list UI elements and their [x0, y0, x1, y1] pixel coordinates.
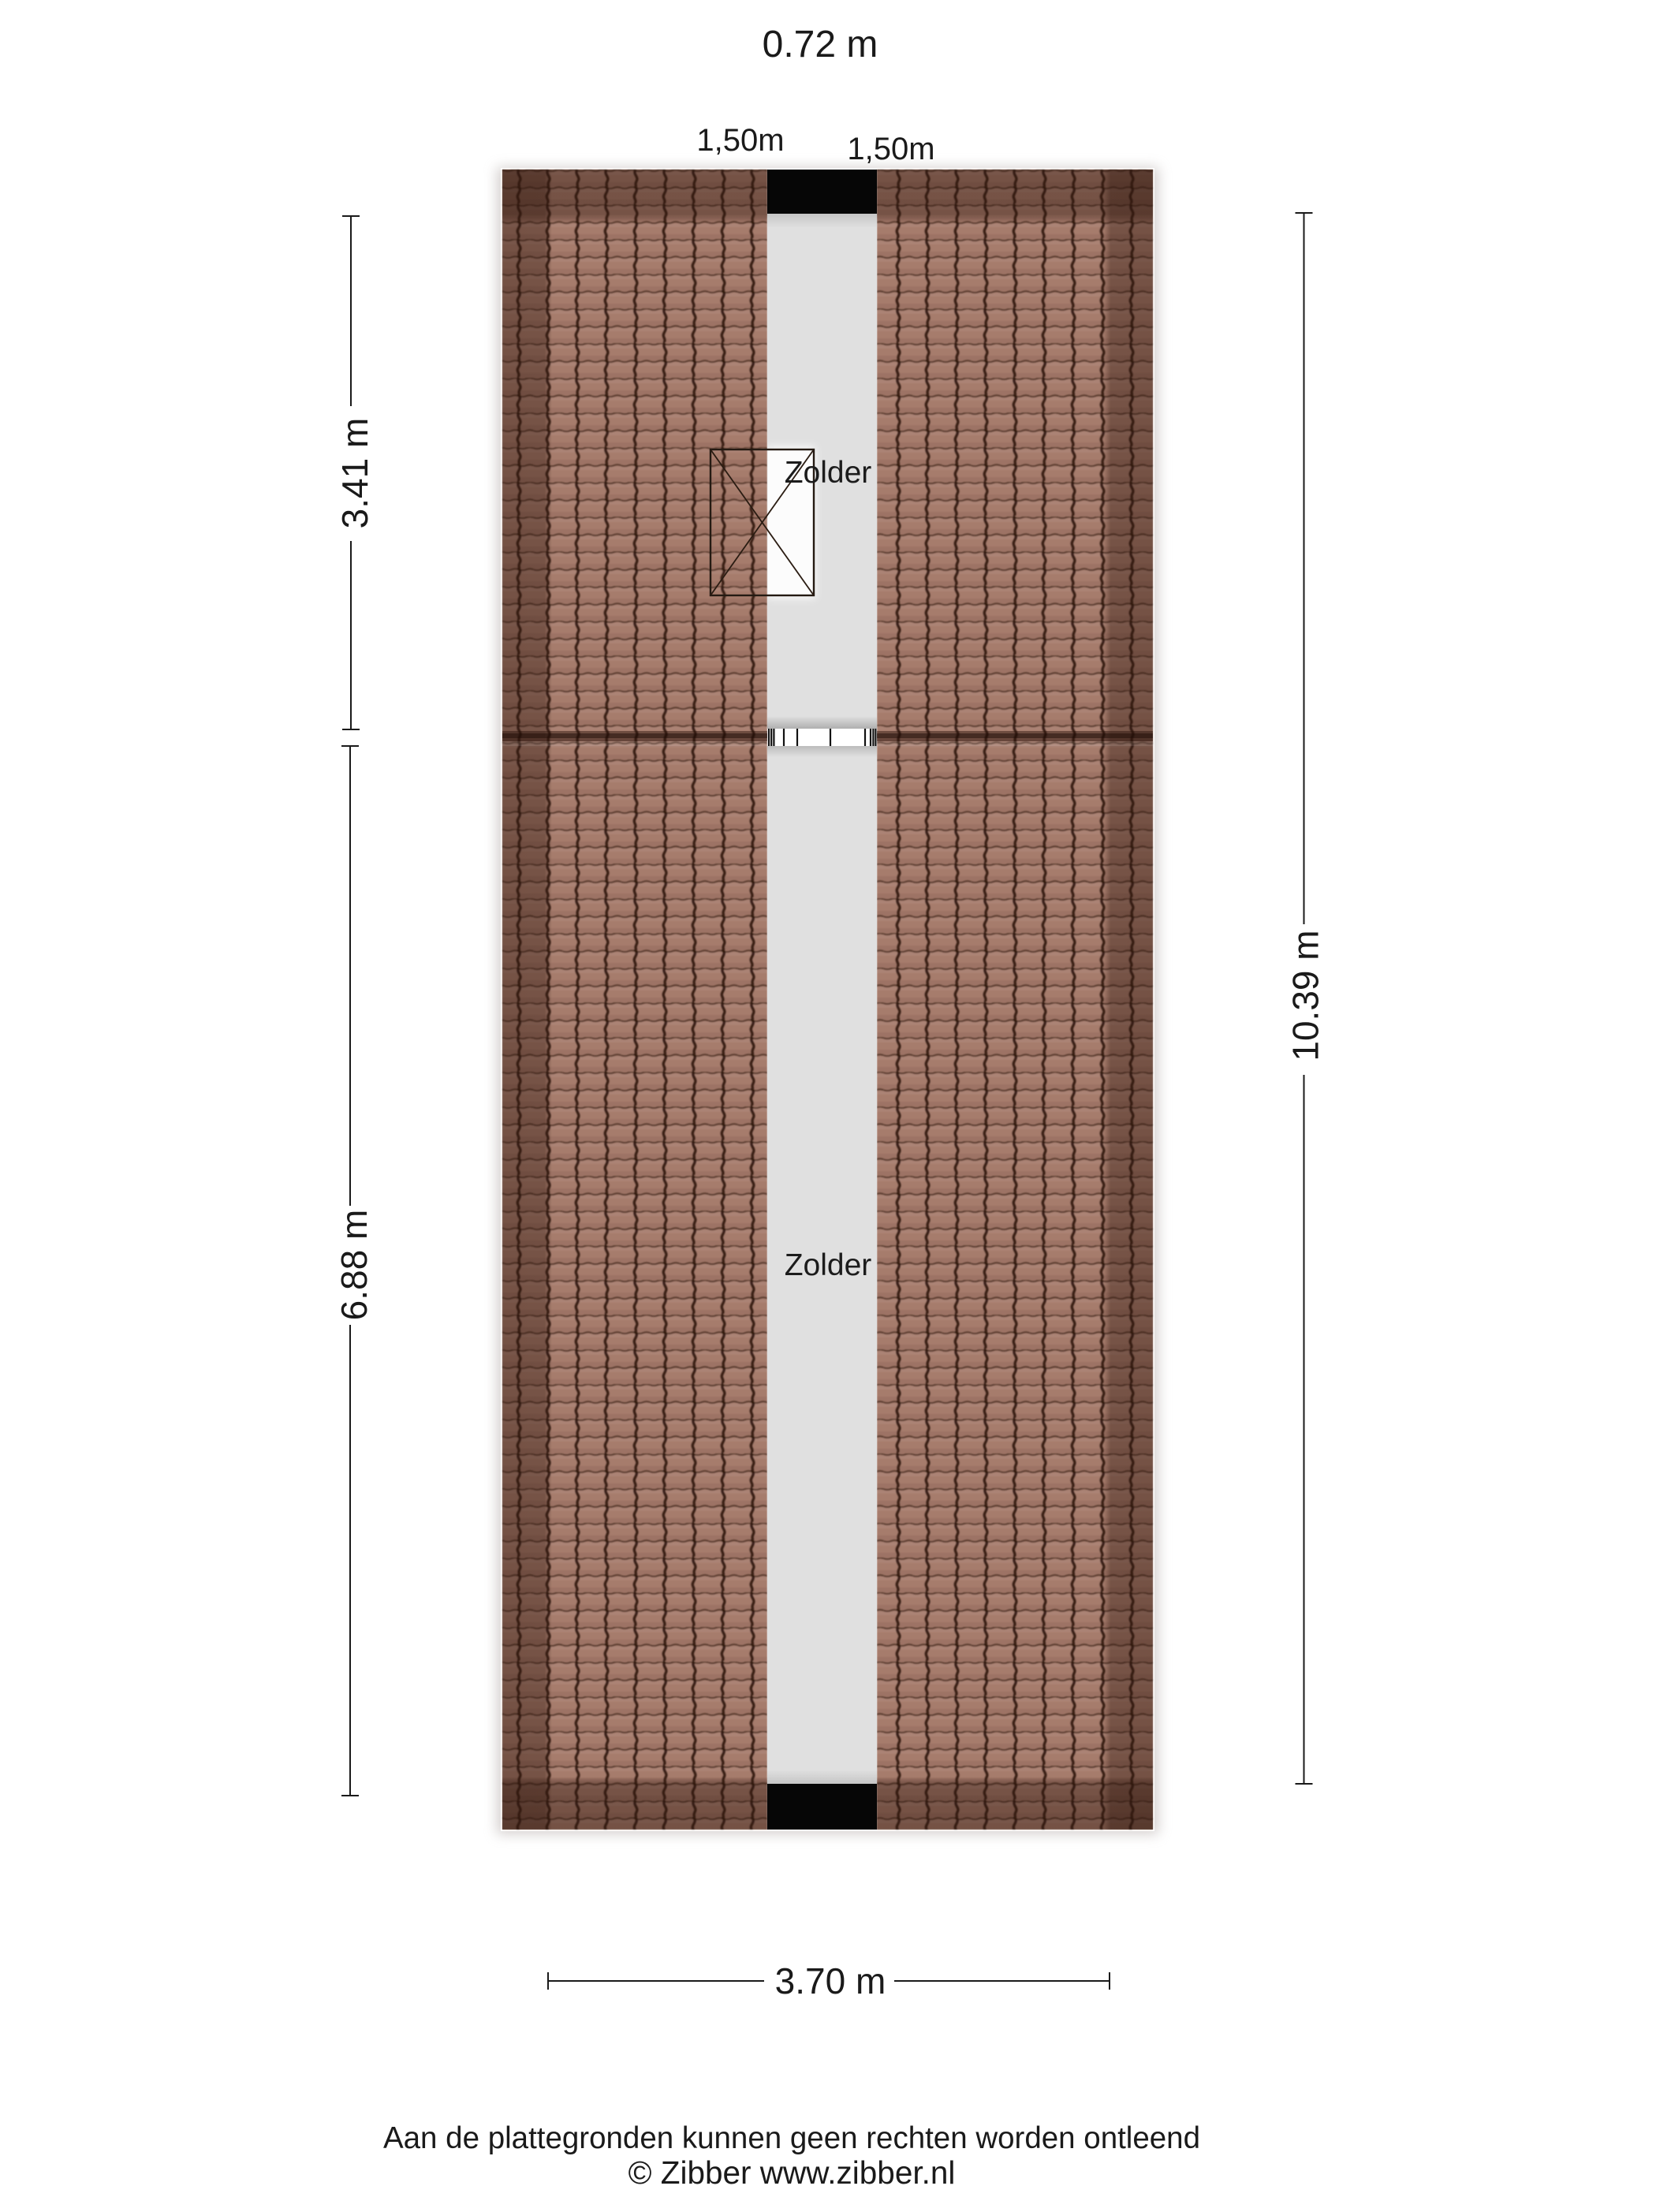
svg-text:1,50m: 1,50m — [696, 123, 784, 158]
svg-text:© Zibber www.zibber.nl: © Zibber www.zibber.nl — [628, 2154, 956, 2191]
svg-text:3.70 m: 3.70 m — [775, 1960, 886, 2001]
svg-text:Aan de plattegronden kunnen ge: Aan de plattegronden kunnen geen rechten… — [383, 2121, 1200, 2155]
svg-text:10.39 m: 10.39 m — [1285, 930, 1326, 1061]
svg-text:1,50m: 1,50m — [847, 132, 934, 166]
svg-text:3.41 m: 3.41 m — [334, 418, 375, 529]
svg-text:0.72 m: 0.72 m — [763, 24, 878, 65]
svg-text:Zolder: Zolder — [785, 456, 872, 490]
svg-text:Zolder: Zolder — [785, 1248, 872, 1282]
svg-text:6.88 m: 6.88 m — [334, 1210, 375, 1321]
